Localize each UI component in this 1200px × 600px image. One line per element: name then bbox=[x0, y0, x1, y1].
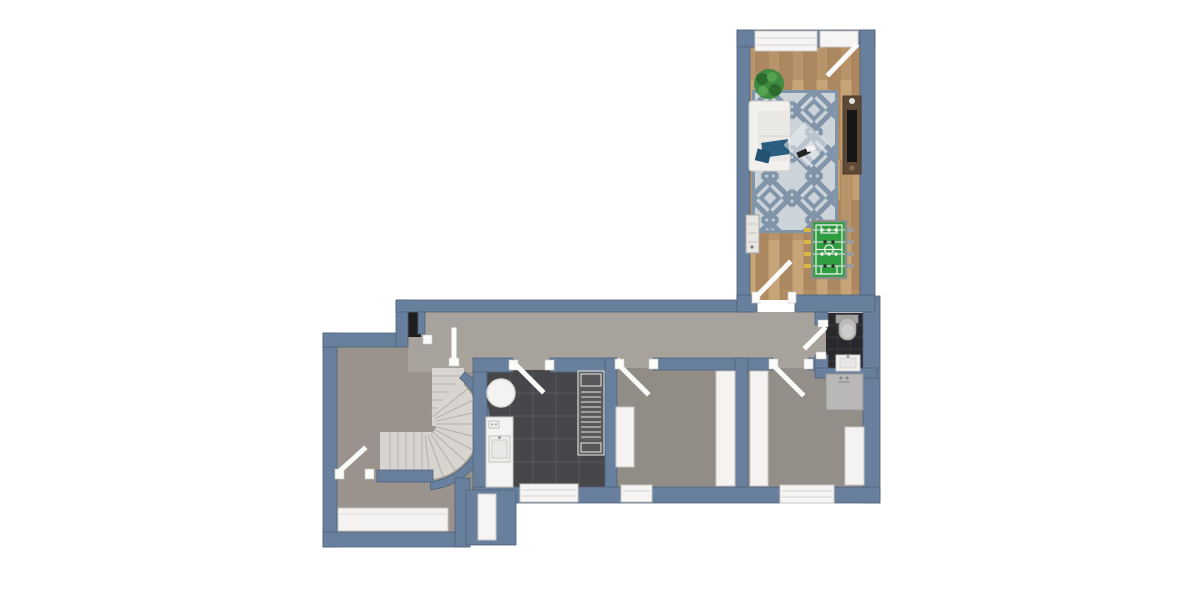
sofa bbox=[749, 101, 790, 171]
wc-sink bbox=[836, 355, 860, 371]
wall-bedroom-top bbox=[653, 358, 773, 370]
wardrobe bbox=[616, 407, 634, 467]
wall-stairroom-top bbox=[323, 333, 400, 347]
wall-bedroom-divider bbox=[735, 358, 748, 487]
wall-kitchen-top-left bbox=[473, 358, 513, 372]
wall-kitchen-left bbox=[473, 372, 487, 503]
potted-plant bbox=[754, 69, 784, 99]
decor-vase bbox=[849, 98, 855, 104]
bedroom-window bbox=[621, 485, 652, 502]
wall-niche-side bbox=[418, 312, 425, 334]
wall-living-left bbox=[737, 30, 750, 312]
wall-living-right bbox=[860, 30, 875, 298]
decor-bowl bbox=[850, 166, 855, 171]
hall-door-frame bbox=[423, 335, 432, 344]
stair-room bbox=[338, 508, 448, 531]
foosball-table bbox=[804, 221, 854, 278]
entry-door bbox=[478, 494, 496, 540]
wall-left-outer bbox=[323, 333, 337, 547]
wardrobe bbox=[750, 371, 768, 486]
bedroom2-window bbox=[780, 485, 834, 503]
wall-living-bottom-right bbox=[795, 295, 875, 312]
shower bbox=[826, 374, 863, 410]
floor-plan bbox=[0, 0, 1200, 600]
wall-right-outer bbox=[863, 296, 880, 503]
wall-hall-top bbox=[396, 300, 750, 312]
radiator bbox=[746, 215, 759, 253]
floor-plan-canvas bbox=[0, 0, 1200, 600]
wall-kitchen-right bbox=[605, 358, 617, 487]
kitchen-appliance bbox=[578, 371, 604, 455]
kitchen-table bbox=[487, 379, 515, 407]
kitchen-window bbox=[520, 484, 578, 502]
sideboard bbox=[338, 508, 448, 531]
wall-stairroom-bottom bbox=[323, 532, 470, 547]
tv bbox=[847, 110, 857, 162]
tv-console bbox=[843, 96, 861, 174]
living-room-window bbox=[755, 31, 817, 51]
wardrobe bbox=[716, 371, 735, 486]
stair-stringer-base bbox=[377, 470, 433, 482]
cabinet bbox=[845, 427, 864, 485]
balcony-door-frame bbox=[820, 31, 858, 47]
kitchen-counter-sink bbox=[486, 417, 513, 487]
